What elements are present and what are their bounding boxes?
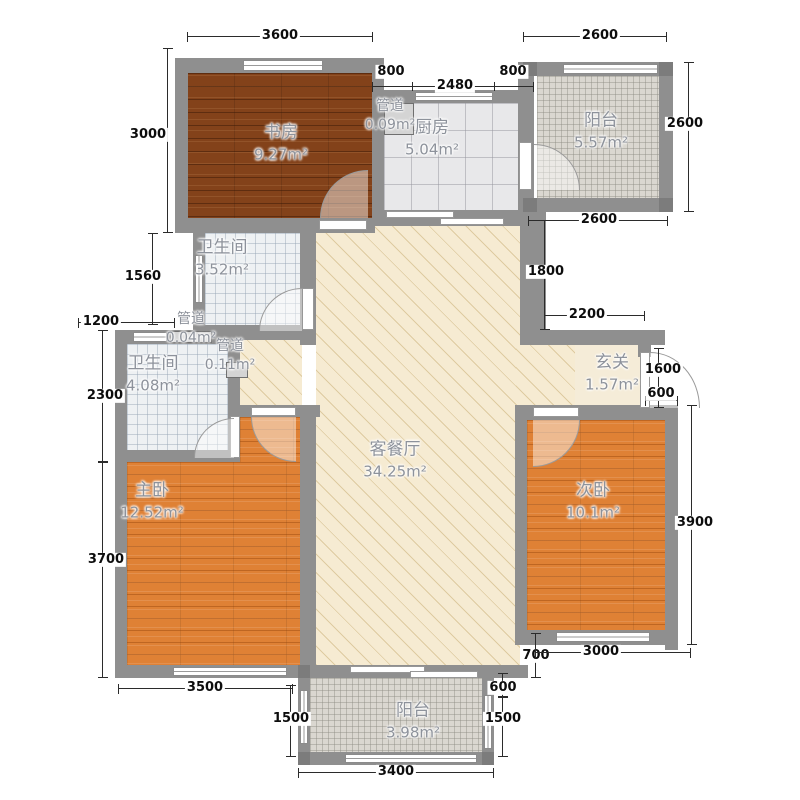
room-name: 卫生间: [195, 236, 249, 259]
dim-label: 2200: [567, 308, 607, 322]
dim-label: 3500: [185, 681, 225, 695]
dim-label: 1600: [643, 363, 683, 377]
room-name: 客餐厅: [363, 438, 427, 461]
dim-label: 3400: [376, 765, 416, 779]
second-bedroom-window: [556, 632, 650, 642]
room-label-study: 书房 9.27m²: [254, 121, 308, 164]
room-label-living: 客餐厅 34.25m²: [363, 438, 427, 481]
second-bedroom-door-leaf: [533, 407, 579, 417]
room-area: 5.57m²: [574, 132, 628, 152]
room-area: 0.11m²: [205, 356, 255, 375]
room-name: 阳台: [386, 699, 440, 722]
dim-label: 3600: [260, 29, 300, 43]
dim-label: 3700: [86, 553, 126, 567]
room-area: 5.04m²: [405, 139, 459, 159]
dim-label: 1500: [483, 712, 523, 726]
room-label-master: 主卧 12.52m²: [120, 479, 184, 522]
dim-line: [688, 62, 689, 212]
dim-label: 1500: [271, 712, 311, 726]
bath-small-door-leaf: [302, 288, 314, 330]
room-name: 书房: [254, 121, 308, 144]
room-label-bath-main: 卫生间 4.08m²: [126, 352, 180, 395]
dim-tick: [494, 82, 495, 91]
bath-main-window: [133, 332, 167, 342]
wall-corner: [659, 62, 673, 76]
dim-label: 1200: [81, 315, 121, 329]
study-window: [243, 60, 323, 71]
room-name: 卫生间: [126, 352, 180, 375]
room-label-second: 次卧 10.1m²: [566, 479, 620, 522]
dim-label: 3000: [581, 645, 621, 659]
dim-label: 700: [520, 649, 551, 663]
room-label-balcony-top: 阳台 5.57m²: [574, 109, 628, 152]
dim-line: [102, 462, 103, 678]
dim-label: 2480: [435, 79, 475, 93]
floor-plan: 书房 9.27m² 管道 0.09m² 厨房 5.04m² 阳台 5.57m² …: [0, 0, 800, 800]
dim-label: 3000: [128, 128, 168, 142]
room-area: 12.52m²: [120, 502, 184, 522]
master-window: [173, 667, 287, 676]
wall: [478, 665, 528, 678]
room-name: 主卧: [120, 479, 184, 502]
room-name: 阳台: [574, 109, 628, 132]
wall-corner: [659, 198, 673, 212]
wall-corner: [523, 198, 537, 212]
room-name: 厨房: [405, 116, 459, 139]
wall: [523, 198, 673, 212]
balcony-sliding-door: [410, 671, 478, 678]
room-area: 3.52m²: [195, 259, 249, 279]
room-area: 9.27m²: [254, 144, 308, 164]
room-label-bath-small: 卫生间 3.52m²: [195, 236, 249, 279]
room-name: 次卧: [566, 479, 620, 502]
room-name: 管道: [205, 337, 255, 356]
dim-label: 800: [497, 65, 528, 79]
room-name: 管道: [365, 97, 415, 116]
kitchen-sliding-door: [440, 218, 504, 225]
dim-label: 1560: [123, 270, 163, 284]
wall-corner: [298, 665, 310, 678]
wall: [520, 330, 665, 345]
study-door-leaf: [319, 220, 367, 230]
dim-label: 1800: [526, 265, 566, 279]
room-label-pipe-low: 管道 0.11m²: [205, 337, 255, 375]
room-label-kitchen: 厨房 5.04m²: [405, 116, 459, 159]
kitchen-window: [415, 92, 493, 101]
room-area: 1.57m²: [585, 374, 639, 394]
dim-tick: [412, 82, 413, 91]
room-area: 3.98m²: [386, 722, 440, 742]
room-label-balcony-bottom: 阳台 3.98m²: [386, 699, 440, 742]
dim-label: 2300: [85, 389, 125, 403]
dim-line: [502, 697, 503, 757]
room-area: 34.25m²: [363, 461, 427, 481]
wall: [515, 405, 527, 645]
wall: [659, 62, 673, 212]
entry-hatch-floor: [516, 345, 575, 405]
balcony-bottom-window: [345, 754, 477, 763]
room-area: 10.1m²: [566, 502, 620, 522]
dim-label: 600: [645, 387, 676, 401]
wall: [372, 58, 384, 226]
room-name: 玄关: [585, 351, 639, 374]
dim-label: 2600: [580, 29, 620, 43]
room-area: 4.08m²: [126, 375, 180, 395]
dim-label: 3900: [675, 516, 715, 530]
wall: [175, 58, 188, 233]
dim-label: 2600: [665, 117, 705, 131]
dim-label: 2600: [579, 213, 619, 227]
dim-label: 600: [487, 681, 518, 695]
kitchen-balcony-door-leaf: [519, 142, 532, 190]
kitchen-sliding-door: [386, 211, 454, 218]
wall-corner: [482, 752, 494, 765]
wall-corner: [298, 752, 310, 765]
balcony-top-window: [563, 64, 658, 74]
master-door-leaf: [251, 407, 296, 416]
wall: [300, 405, 316, 665]
dim-label: 800: [375, 65, 406, 79]
room-label-entry: 玄关 1.57m²: [585, 351, 639, 394]
